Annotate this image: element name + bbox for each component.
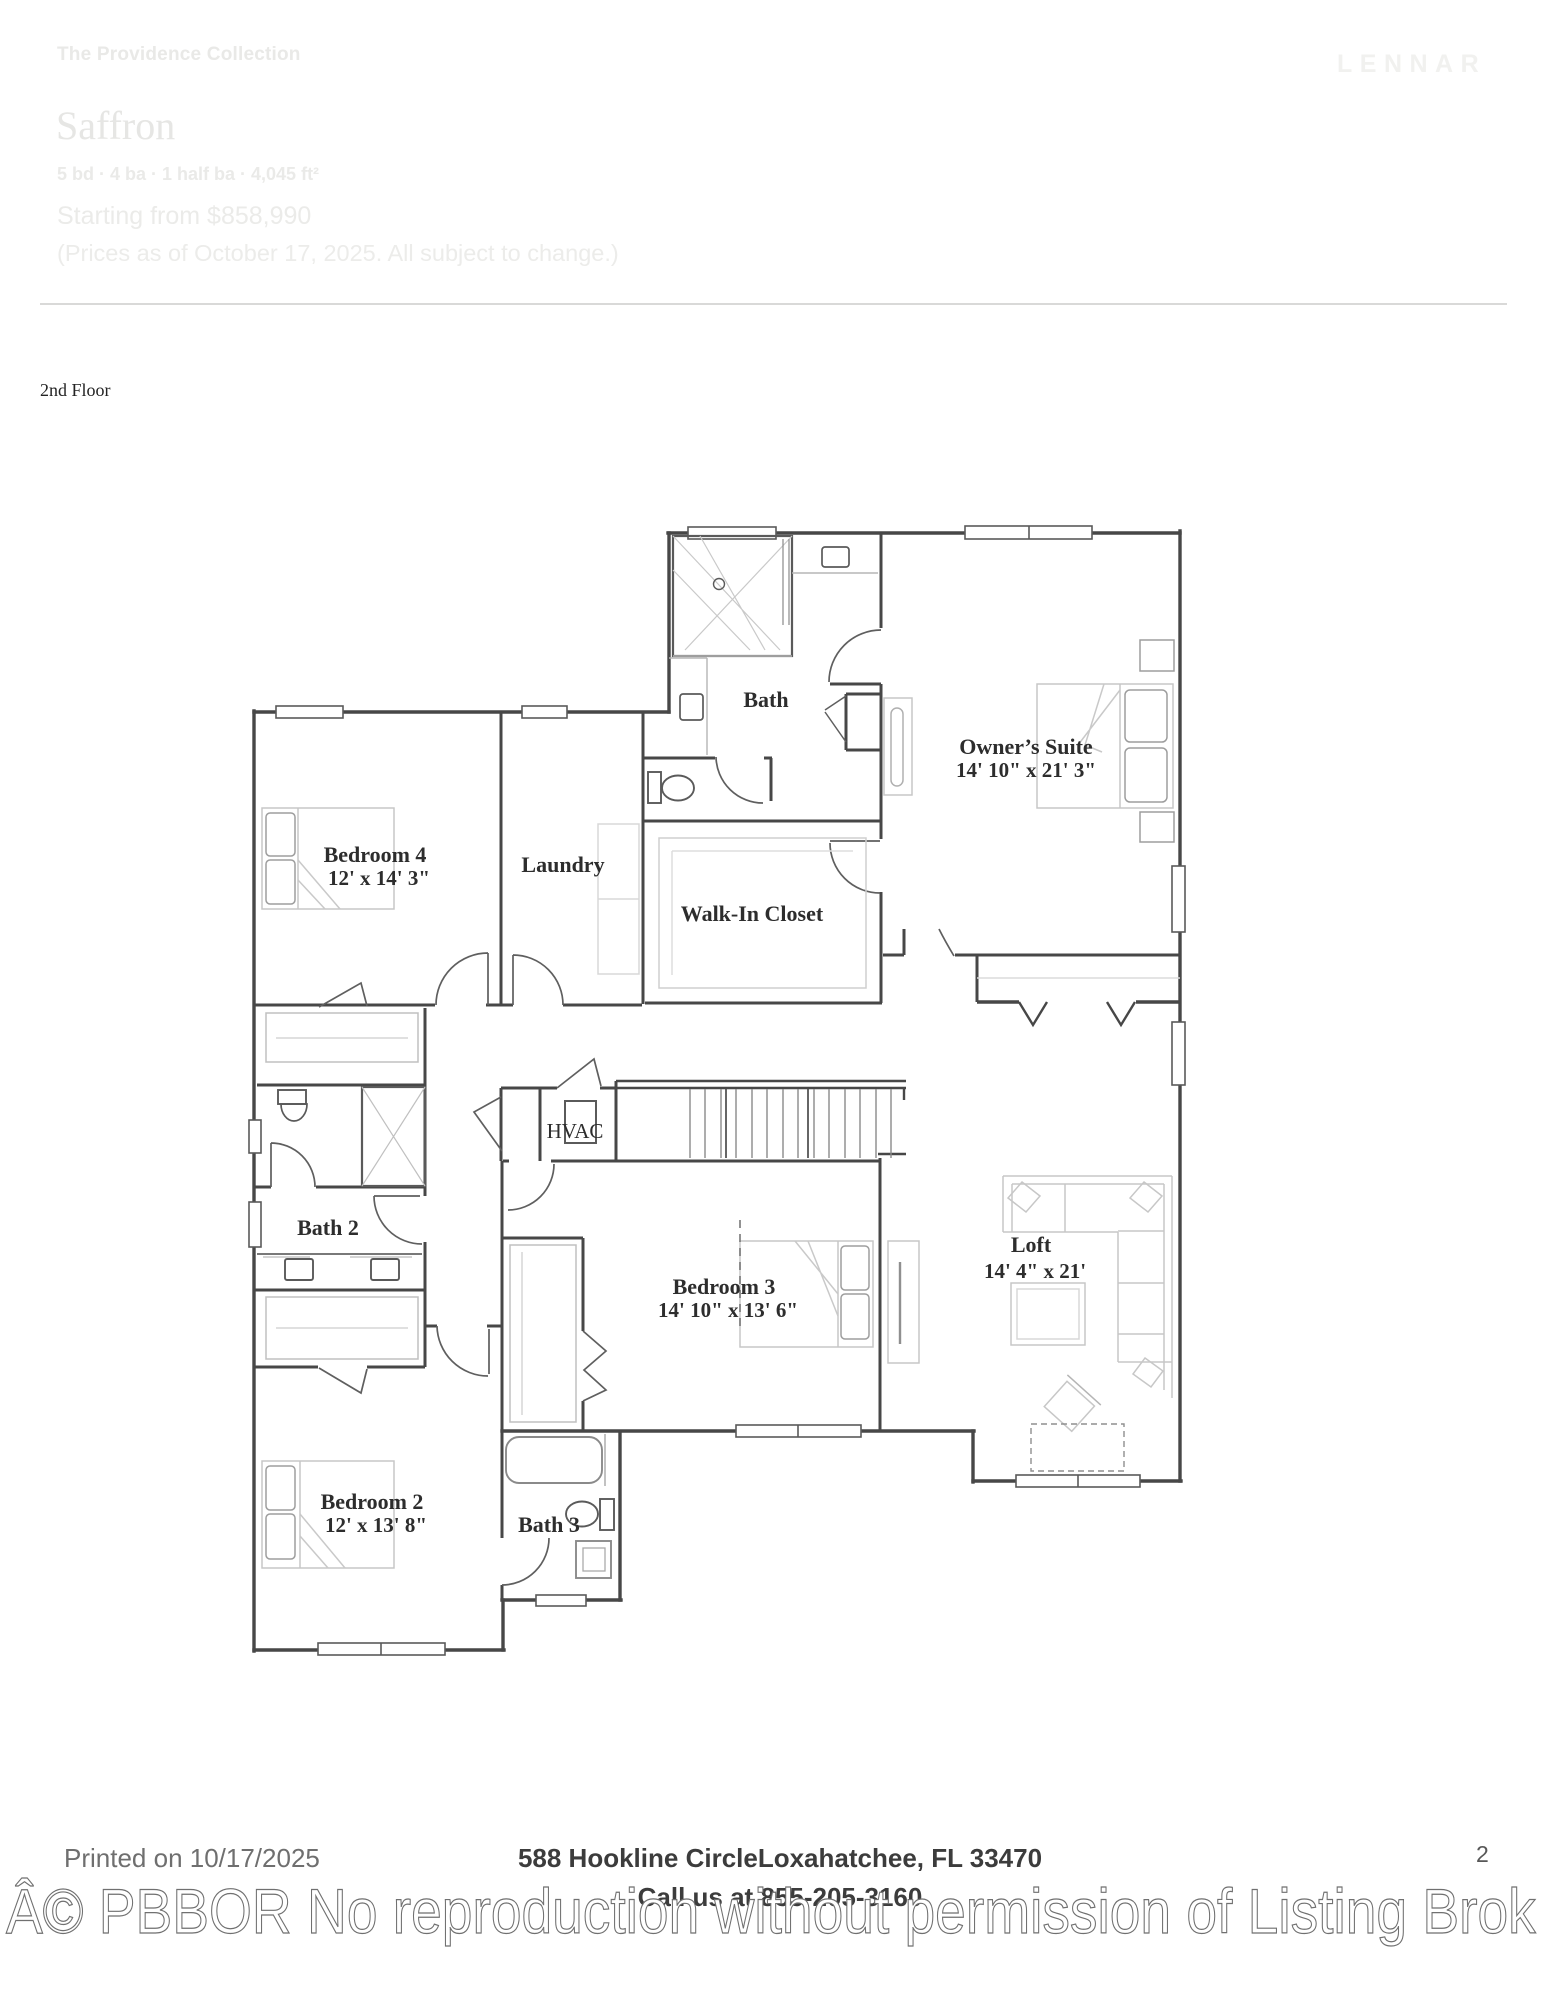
svg-text:14' 4" x 21': 14' 4" x 21' [984,1259,1086,1283]
svg-text:Walk-In Closet: Walk-In Closet [681,901,824,926]
svg-text:HVAC: HVAC [547,1119,604,1143]
svg-text:Bedroom 3: Bedroom 3 [673,1274,776,1299]
svg-text:Loft: Loft [1011,1232,1052,1257]
svg-text:12' x 13' 8": 12' x 13' 8" [325,1513,427,1537]
svg-text:14' 10" x 21' 3": 14' 10" x 21' 3" [956,758,1096,782]
svg-text:Laundry: Laundry [521,852,604,877]
svg-text:12' x 14' 3": 12' x 14' 3" [328,866,430,890]
svg-text:Owner’s Suite: Owner’s Suite [959,734,1093,759]
svg-text:Bath 2: Bath 2 [297,1215,359,1240]
svg-text:14' 10" x 13' 6": 14' 10" x 13' 6" [658,1298,798,1322]
svg-text:Bath: Bath [743,687,788,712]
svg-text:Bath 3: Bath 3 [518,1512,580,1537]
svg-text:Bedroom 4: Bedroom 4 [324,842,427,867]
svg-text:Bedroom 2: Bedroom 2 [321,1489,424,1514]
